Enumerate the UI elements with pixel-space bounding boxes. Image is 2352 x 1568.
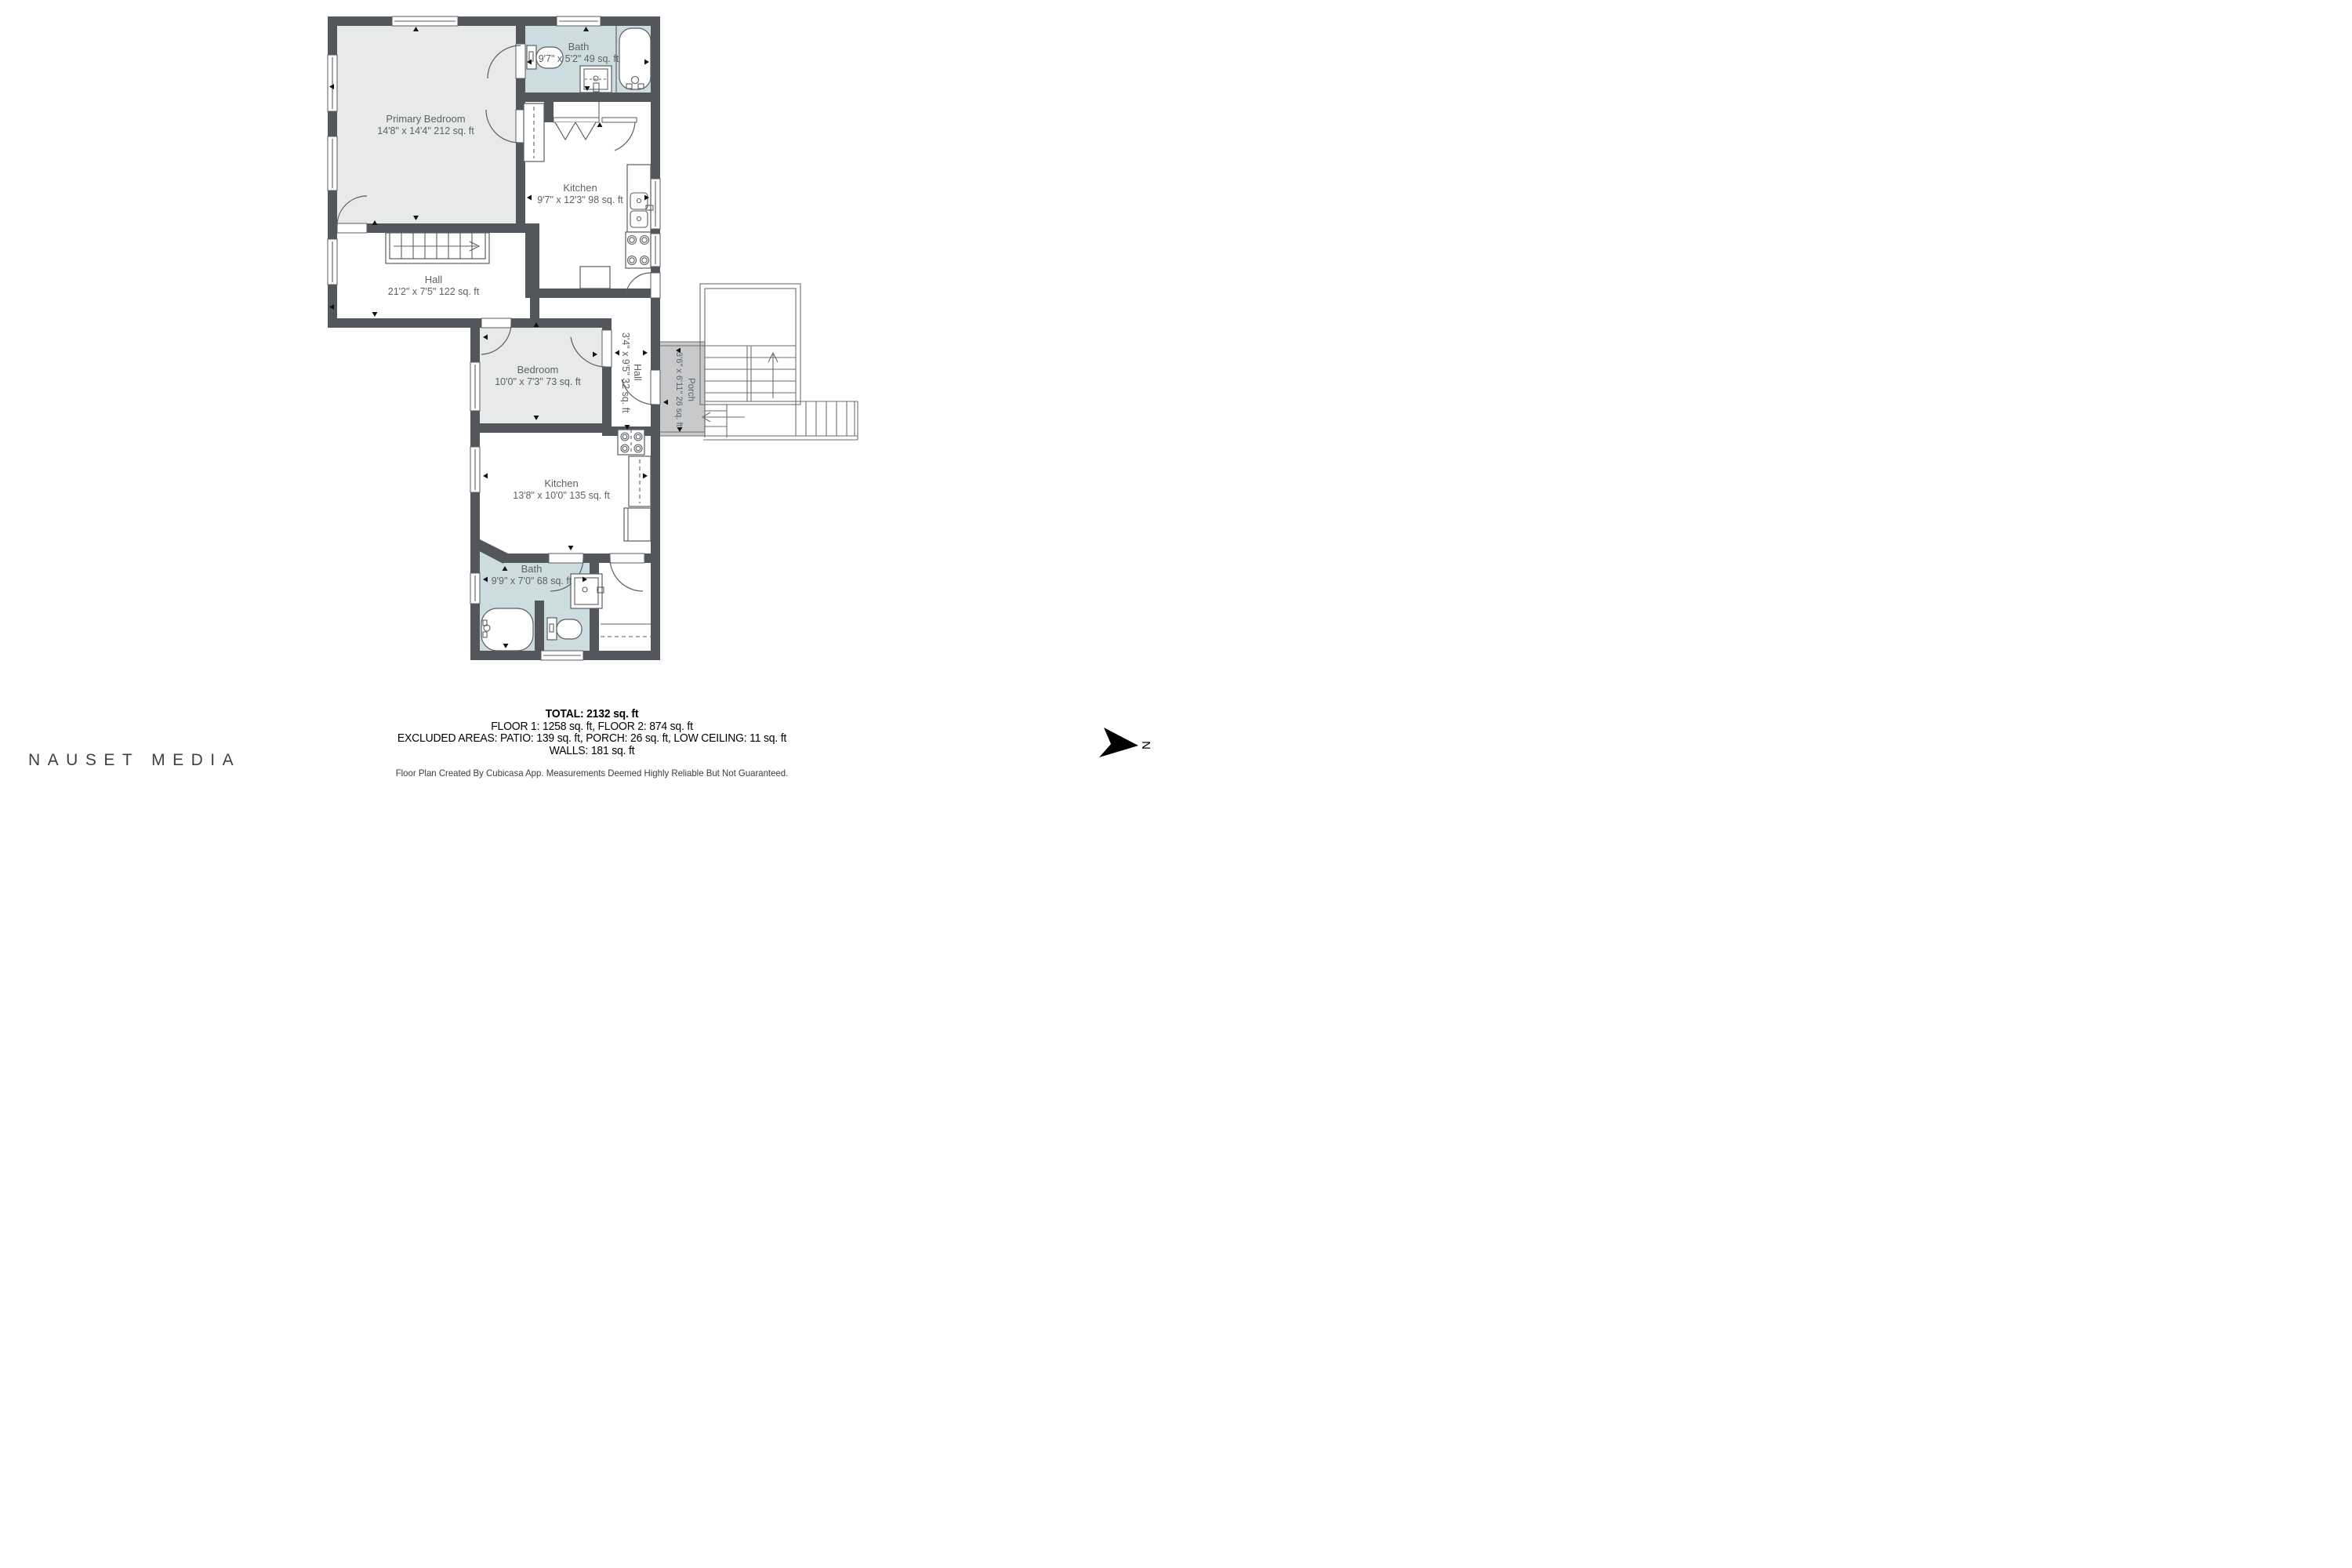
- room-label-bath1: Bath 9'9" x 7'0" 68 sq. ft: [453, 563, 610, 587]
- room-label-hall2: Hall 21'2" x 7'5" 122 sq. ft: [355, 274, 512, 298]
- window: [470, 447, 480, 492]
- room-name: Primary Bedroom: [347, 113, 504, 125]
- window: [328, 239, 337, 285]
- floor-areas: FLOOR 1: 1258 sq. ft, FLOOR 2: 874 sq. f…: [260, 720, 924, 733]
- room-dimensions: 14'8" x 14'4" 212 sq. ft: [347, 125, 504, 138]
- room-name: Hall: [631, 314, 643, 431]
- door-leaf: [602, 330, 612, 367]
- nauset-media-logo: NAUSET MEDIA: [28, 751, 241, 770]
- room-dimensions: 9'7" x 12'3" 98 sq. ft: [502, 194, 659, 207]
- room-label-bedroom1: Bedroom 10'0" x 7'3" 73 sq. ft: [459, 364, 616, 388]
- door-leaf: [549, 554, 583, 563]
- door-leaf: [481, 318, 511, 328]
- room-name: Bedroom: [459, 364, 616, 376]
- room-label-kitchen2: Kitchen 9'7" x 12'3" 98 sq. ft: [502, 182, 659, 206]
- toilet-bowl-icon: [557, 619, 582, 639]
- exterior-deck-stairs: [700, 284, 858, 440]
- room-name: Bath: [453, 563, 610, 575]
- table: [580, 267, 610, 289]
- closet-door-arc: [615, 122, 635, 151]
- room-name: Hall: [355, 274, 512, 286]
- window: [328, 136, 337, 191]
- closets: [524, 102, 637, 162]
- room-dimensions: 21'2" x 7'5" 122 sq. ft: [355, 286, 512, 299]
- room-name: Kitchen: [502, 182, 659, 194]
- room-dimensions: 13'8" x 10'0" 135 sq. ft: [483, 490, 640, 503]
- room-dimensions: 9'7" x 5'2" 49 sq. ft: [508, 53, 649, 66]
- excluded-areas: EXCLUDED AREAS: PATIO: 139 sq. ft, PORCH…: [260, 732, 924, 745]
- toilet-icon: [547, 618, 557, 640]
- room-label-primary-bedroom: Primary Bedroom 14'8" x 14'4" 212 sq. ft: [347, 113, 504, 137]
- floor-plan-page: Bath 9'7" x 5'2" 49 sq. ft Primary Bedro…: [0, 0, 1176, 784]
- basement-staircase: [601, 624, 651, 637]
- door-leaf: [337, 223, 367, 233]
- room-label-bath2: Bath 9'7" x 5'2" 49 sq. ft: [508, 41, 649, 65]
- room-dimensions: 3'6" x 6'11" 26 sq. ft: [673, 345, 684, 434]
- north-arrow-icon: [1099, 728, 1138, 757]
- window: [557, 16, 601, 26]
- stove-icon: [626, 232, 651, 268]
- door-leaf: [610, 554, 644, 563]
- north-label: N: [1139, 741, 1152, 750]
- room-dimensions: 3'4" x 9'5" 32 sq. ft: [619, 314, 631, 431]
- hall2-staircase: [386, 233, 489, 263]
- room-name: Bath: [508, 41, 649, 53]
- bifold-door: [555, 122, 596, 140]
- door-leaf: [651, 370, 660, 405]
- room-name: Porch: [684, 345, 696, 434]
- walls-area: WALLS: 181 sq. ft: [260, 745, 924, 757]
- total-area: TOTAL: 2132 sq. ft: [260, 708, 924, 720]
- floor-plan-drawing: [0, 0, 1176, 784]
- window: [541, 651, 583, 660]
- room-dimensions: 10'0" x 7'3" 73 sq. ft: [459, 376, 616, 389]
- room-label-porch: Porch 3'6" x 6'11" 26 sq. ft: [673, 345, 696, 434]
- bifold-door-leaf: [554, 118, 599, 122]
- door-leaf: [651, 273, 660, 298]
- room-label-hall1: Hall 3'4" x 9'5" 32 sq. ft: [616, 314, 643, 431]
- window: [328, 55, 337, 111]
- room-label-kitchen1: Kitchen 13'8" x 10'0" 135 sq. ft: [483, 477, 640, 502]
- closet-door-leaf: [602, 118, 637, 122]
- room-name: Kitchen: [483, 477, 640, 490]
- window: [392, 16, 458, 26]
- disclaimer-text: Floor Plan Created By Cubicasa App. Meas…: [253, 768, 931, 779]
- window: [651, 234, 660, 267]
- area-summary: TOTAL: 2132 sq. ft FLOOR 1: 1258 sq. ft,…: [260, 708, 924, 757]
- room-dimensions: 9'9" x 7'0" 68 sq. ft: [453, 575, 610, 588]
